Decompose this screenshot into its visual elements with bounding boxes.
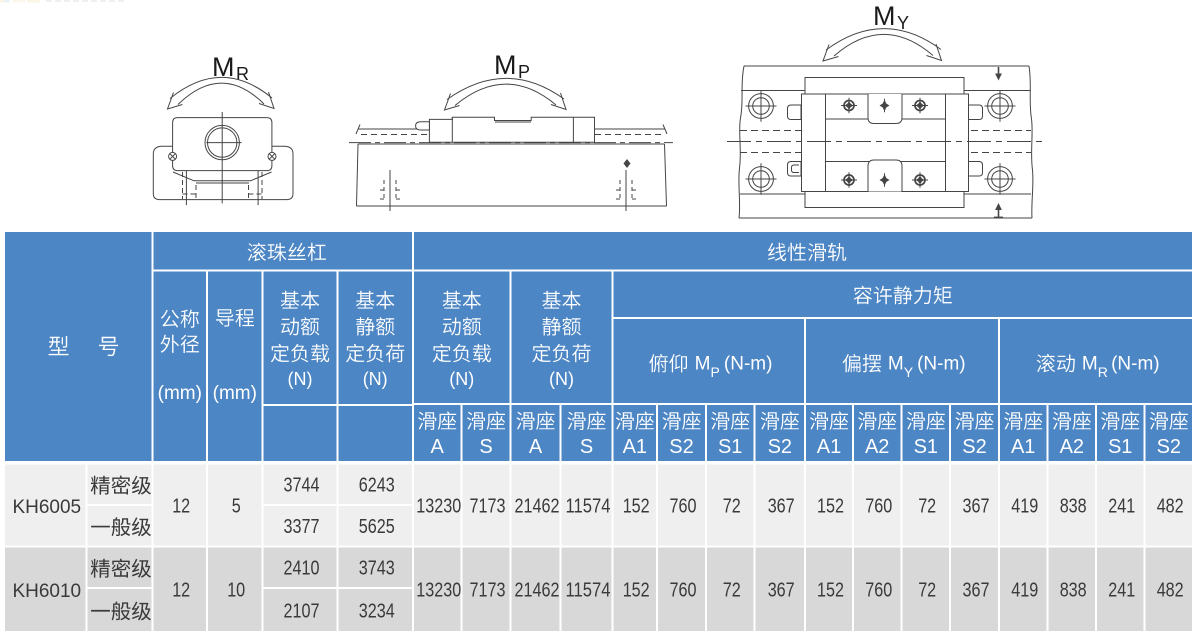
svg-text:S2: S2 <box>669 436 693 458</box>
svg-text:13230: 13230 <box>416 579 461 602</box>
svg-text:7173: 7173 <box>470 494 506 517</box>
svg-text:760: 760 <box>670 494 697 517</box>
svg-text:11574: 11574 <box>566 494 611 517</box>
svg-text:152: 152 <box>817 494 844 517</box>
svg-text:838: 838 <box>1060 494 1087 517</box>
svg-text:5625: 5625 <box>359 515 395 538</box>
svg-text:241: 241 <box>1108 579 1135 602</box>
svg-text:2410: 2410 <box>284 557 320 580</box>
svg-text:(N): (N) <box>449 369 474 389</box>
svg-text:72: 72 <box>723 579 741 602</box>
svg-text:152: 152 <box>623 579 650 602</box>
svg-text:P: P <box>518 62 530 82</box>
svg-text:(N-m): (N-m) <box>1111 354 1160 375</box>
svg-text:72: 72 <box>918 494 936 517</box>
svg-text:13230: 13230 <box>416 494 461 517</box>
svg-text:760: 760 <box>865 494 892 517</box>
svg-text:Y: Y <box>904 364 914 380</box>
svg-text:3744: 3744 <box>284 474 320 497</box>
svg-text:419: 419 <box>1011 579 1038 602</box>
svg-text:(mm): (mm) <box>158 383 202 404</box>
svg-text:S1: S1 <box>718 436 742 458</box>
svg-text:152: 152 <box>623 494 650 517</box>
svg-text:(N): (N) <box>363 369 388 389</box>
svg-text:3234: 3234 <box>359 599 395 622</box>
svg-text:3743: 3743 <box>359 557 395 580</box>
svg-text:12: 12 <box>172 579 190 602</box>
svg-text:A2: A2 <box>865 436 889 458</box>
svg-text:M: M <box>695 354 711 375</box>
svg-text:A: A <box>529 436 543 458</box>
svg-text:152: 152 <box>817 579 844 602</box>
svg-text:A2: A2 <box>1060 436 1084 458</box>
svg-text:(N): (N) <box>549 369 574 389</box>
svg-text:A1: A1 <box>623 436 647 458</box>
svg-text:760: 760 <box>670 579 697 602</box>
svg-text:S2: S2 <box>962 436 986 458</box>
svg-text:S: S <box>479 436 492 458</box>
svg-text:S1: S1 <box>1108 436 1132 458</box>
svg-text:10: 10 <box>227 579 245 602</box>
svg-text:11574: 11574 <box>566 579 611 602</box>
svg-text:367: 367 <box>963 579 990 602</box>
svg-text:S1: S1 <box>914 436 938 458</box>
svg-text:760: 760 <box>865 579 892 602</box>
svg-text:419: 419 <box>1011 494 1038 517</box>
svg-text:KH6005: KH6005 <box>12 497 81 518</box>
svg-text:3377: 3377 <box>284 515 320 538</box>
svg-text:KH6010: KH6010 <box>12 581 81 602</box>
svg-text:A1: A1 <box>817 436 841 458</box>
svg-text:72: 72 <box>723 494 741 517</box>
svg-text:482: 482 <box>1157 579 1184 602</box>
svg-text:(N-m): (N-m) <box>724 354 773 375</box>
svg-text:M: M <box>494 50 517 80</box>
svg-text:72: 72 <box>918 579 936 602</box>
svg-text:2107: 2107 <box>284 599 320 622</box>
svg-text:(N-m): (N-m) <box>917 354 966 375</box>
svg-text:A1: A1 <box>1011 436 1035 458</box>
svg-text:S2: S2 <box>768 436 792 458</box>
svg-text:367: 367 <box>768 579 795 602</box>
svg-text:241: 241 <box>1108 494 1135 517</box>
svg-text:M: M <box>1082 354 1098 375</box>
svg-text:367: 367 <box>963 494 990 517</box>
svg-text:S: S <box>580 436 593 458</box>
svg-text:7173: 7173 <box>470 579 506 602</box>
svg-text:(N): (N) <box>288 369 313 389</box>
svg-text:12: 12 <box>172 494 190 517</box>
svg-text:R: R <box>1098 364 1108 380</box>
svg-text:838: 838 <box>1060 579 1087 602</box>
svg-text:367: 367 <box>768 494 795 517</box>
svg-text:S2: S2 <box>1157 436 1181 458</box>
svg-text:M: M <box>888 354 904 375</box>
svg-text:M: M <box>873 1 896 31</box>
svg-text:5: 5 <box>232 494 241 517</box>
svg-text:21462: 21462 <box>515 494 560 517</box>
svg-text:6243: 6243 <box>359 474 395 497</box>
svg-text:482: 482 <box>1157 494 1184 517</box>
svg-text:A: A <box>431 436 445 458</box>
svg-text:(mm): (mm) <box>213 383 257 404</box>
svg-text:21462: 21462 <box>515 579 560 602</box>
svg-text:P: P <box>711 364 720 380</box>
